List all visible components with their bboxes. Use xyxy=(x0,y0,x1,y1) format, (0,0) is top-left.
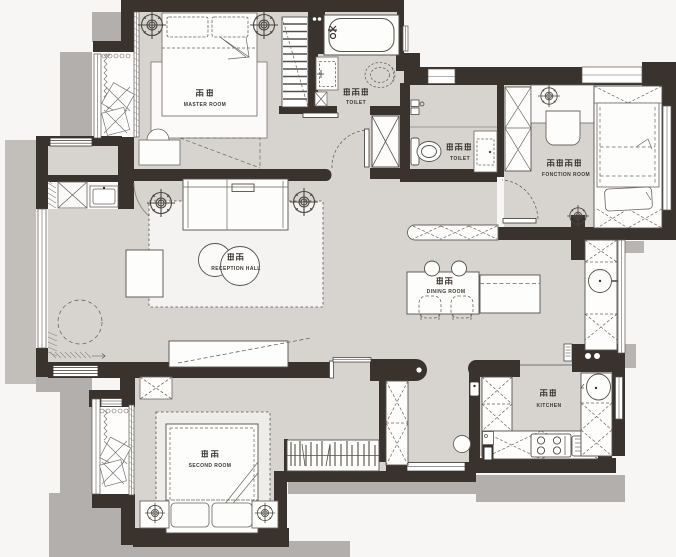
svg-text:RECEPTION HALL: RECEPTION HALL xyxy=(211,266,261,272)
svg-text:SECOND ROOM: SECOND ROOM xyxy=(189,463,232,469)
svg-text:DINING ROOM: DINING ROOM xyxy=(427,289,466,295)
svg-text:TOILET: TOILET xyxy=(346,100,366,106)
svg-text:FONCTION ROOM: FONCTION ROOM xyxy=(542,172,590,178)
svg-text:KITCHEN: KITCHEN xyxy=(536,403,561,409)
svg-text:MASTER ROOM: MASTER ROOM xyxy=(184,102,226,108)
svg-text:TOILET: TOILET xyxy=(450,156,470,162)
